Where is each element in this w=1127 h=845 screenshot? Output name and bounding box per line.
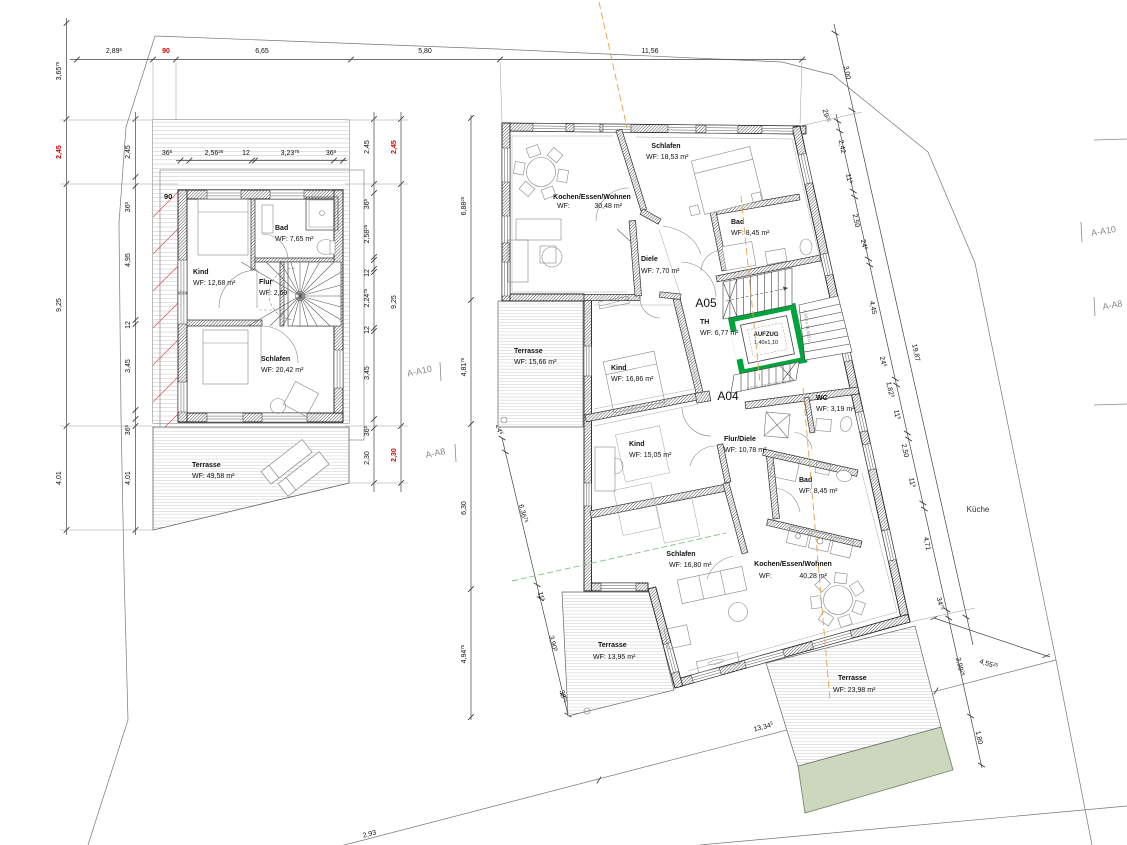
svg-text:WF: 18,53 m²: WF: 18,53 m²: [646, 154, 689, 161]
svg-text:WF: 10,78 m²: WF: 10,78 m²: [724, 447, 767, 454]
svg-text:WF: 7,70 m²: WF: 7,70 m²: [641, 268, 680, 275]
svg-text:Terrasse: Terrasse: [838, 675, 867, 682]
svg-text:WF: 20,42 m²: WF: 20,42 m²: [261, 367, 304, 374]
svg-text:40,28 m²: 40,28 m²: [799, 573, 827, 580]
svg-text:WF: 16,80 m²: WF: 16,80 m²: [669, 562, 712, 569]
svg-text:Flur/Diele: Flur/Diele: [724, 436, 756, 443]
svg-text:WF: 13,95 m²: WF: 13,95 m²: [593, 654, 636, 661]
svg-text:Schlafen: Schlafen: [666, 551, 695, 558]
svg-text:WC: WC: [816, 395, 828, 402]
svg-text:Terrasse: Terrasse: [192, 462, 221, 469]
svg-text:WF: 15,05 m²: WF: 15,05 m²: [629, 452, 672, 459]
svg-text:Kochen/Essen/Wohnen: Kochen/Essen/Wohnen: [553, 194, 631, 201]
svg-text:4,01: 4,01: [56, 471, 63, 485]
svg-text:3,45: 3,45: [364, 366, 371, 380]
svg-text:WF: 23,98 m²: WF: 23,98 m²: [833, 687, 876, 694]
svg-text:Schlafen: Schlafen: [651, 143, 680, 150]
svg-text:Küche: Küche: [967, 505, 990, 514]
svg-text:12: 12: [364, 326, 371, 334]
svg-text:2,45: 2,45: [56, 145, 63, 159]
svg-text:6,65: 6,65: [255, 48, 269, 55]
svg-text:4,95: 4,95: [125, 253, 132, 267]
svg-text:WF: 3,19 m²: WF: 3,19 m²: [816, 406, 855, 413]
svg-text:AUFZUG: AUFZUG: [754, 332, 779, 338]
svg-text:Bad: Bad: [799, 477, 812, 484]
svg-text:Diele: Diele: [641, 256, 658, 263]
svg-text:5,80: 5,80: [418, 48, 432, 55]
svg-text:4,01: 4,01: [125, 471, 132, 485]
svg-text:2,45: 2,45: [364, 140, 371, 154]
svg-text:WF: 6,77 m²: WF: 6,77 m²: [700, 330, 739, 337]
svg-text:30,48 m²: 30,48 m²: [594, 203, 622, 210]
svg-text:A05: A05: [695, 296, 717, 310]
svg-text:6,30: 6,30: [461, 501, 468, 515]
svg-text:12: 12: [364, 269, 371, 277]
svg-text:Kind: Kind: [629, 441, 645, 448]
svg-text:90: 90: [162, 48, 170, 55]
svg-text:WF: 2,69: WF: 2,69: [259, 290, 288, 297]
svg-text:1,40x1,10: 1,40x1,10: [754, 340, 778, 346]
svg-text:3,45: 3,45: [125, 359, 132, 373]
svg-text:Kochen/Essen/Wohnen: Kochen/Essen/Wohnen: [754, 561, 832, 568]
svg-text:WF: 8,45 m²: WF: 8,45 m²: [799, 488, 838, 495]
svg-text:12: 12: [242, 150, 250, 157]
svg-text:9,25: 9,25: [56, 298, 63, 312]
svg-text:Terrasse: Terrasse: [598, 642, 627, 649]
svg-text:TH: TH: [700, 319, 709, 326]
svg-text:A04: A04: [717, 389, 739, 403]
svg-text:Kind: Kind: [193, 269, 209, 276]
svg-text:2,30: 2,30: [364, 451, 371, 465]
svg-text:Bad: Bad: [275, 225, 288, 232]
svg-text:WF: 16,86 m²: WF: 16,86 m²: [611, 376, 654, 383]
svg-text:Terrasse: Terrasse: [514, 348, 543, 355]
svg-text:2,45: 2,45: [125, 145, 132, 159]
svg-text:WF:: WF:: [759, 573, 772, 580]
svg-text:Kind: Kind: [611, 365, 627, 372]
svg-text:2,30: 2,30: [391, 448, 398, 462]
svg-text:11,56: 11,56: [642, 48, 659, 55]
svg-text:WF: 12,68 m²: WF: 12,68 m²: [193, 280, 236, 287]
svg-text:WF:: WF:: [557, 203, 570, 210]
svg-text:WF: 49,58 m²: WF: 49,58 m²: [192, 473, 235, 480]
svg-text:WF: 8,45 m²: WF: 8,45 m²: [731, 230, 770, 237]
svg-text:WF: 15,66 m²: WF: 15,66 m²: [514, 359, 557, 366]
svg-text:90: 90: [164, 192, 172, 201]
svg-text:Bad: Bad: [731, 219, 744, 226]
svg-text:2,45: 2,45: [391, 140, 398, 154]
svg-text:Schlafen: Schlafen: [261, 356, 290, 363]
svg-text:12: 12: [125, 321, 132, 329]
svg-text:9,25: 9,25: [391, 295, 398, 309]
